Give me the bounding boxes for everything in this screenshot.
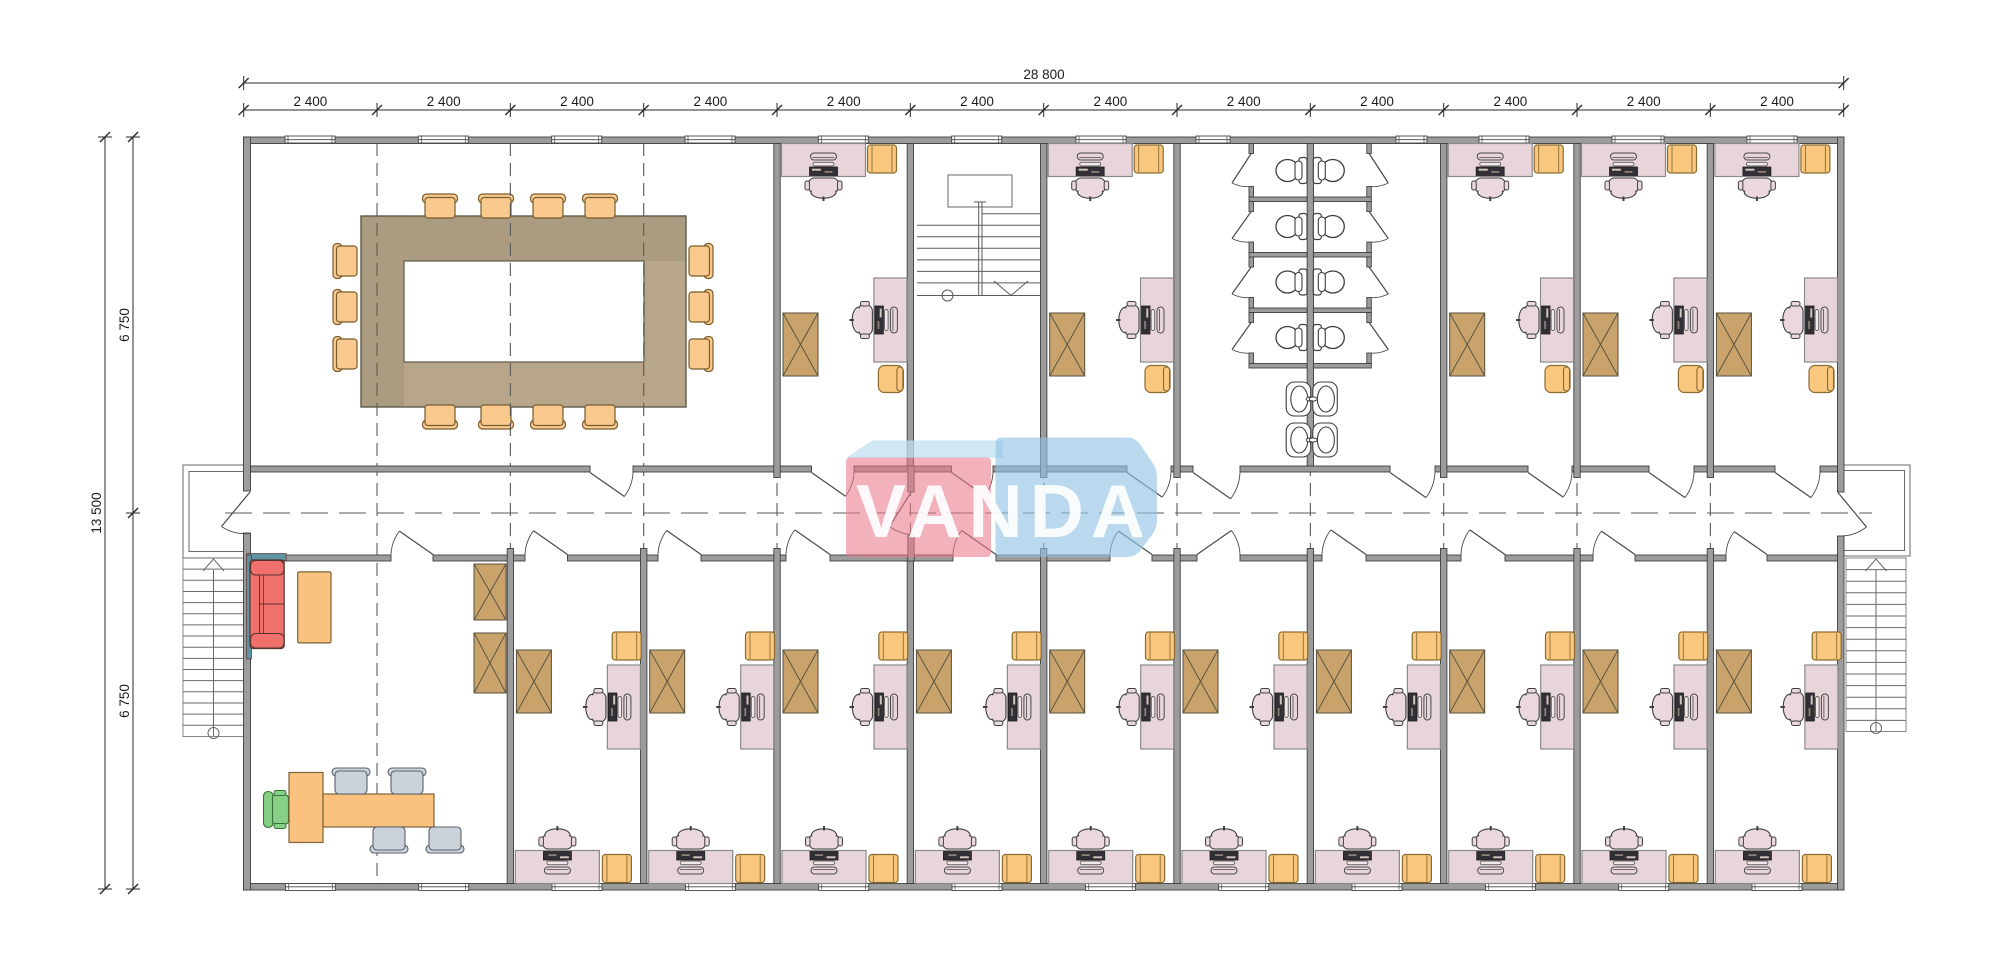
svg-text:6 750: 6 750 (117, 684, 132, 718)
svg-text:2 400: 2 400 (1360, 94, 1394, 109)
svg-text:VANDA: VANDA (856, 469, 1152, 553)
svg-text:2 400: 2 400 (1227, 94, 1261, 109)
svg-text:2 400: 2 400 (827, 94, 861, 109)
svg-text:2 400: 2 400 (693, 94, 727, 109)
svg-text:2 400: 2 400 (1093, 94, 1127, 109)
svg-text:13 500: 13 500 (89, 492, 104, 533)
svg-text:28 800: 28 800 (1023, 67, 1064, 82)
svg-text:2 400: 2 400 (1627, 94, 1661, 109)
svg-text:2 400: 2 400 (427, 94, 461, 109)
svg-text:6 750: 6 750 (117, 308, 132, 342)
svg-text:2 400: 2 400 (293, 94, 327, 109)
svg-text:2 400: 2 400 (960, 94, 994, 109)
svg-text:2 400: 2 400 (1760, 94, 1794, 109)
svg-text:2 400: 2 400 (560, 94, 594, 109)
svg-text:2 400: 2 400 (1493, 94, 1527, 109)
